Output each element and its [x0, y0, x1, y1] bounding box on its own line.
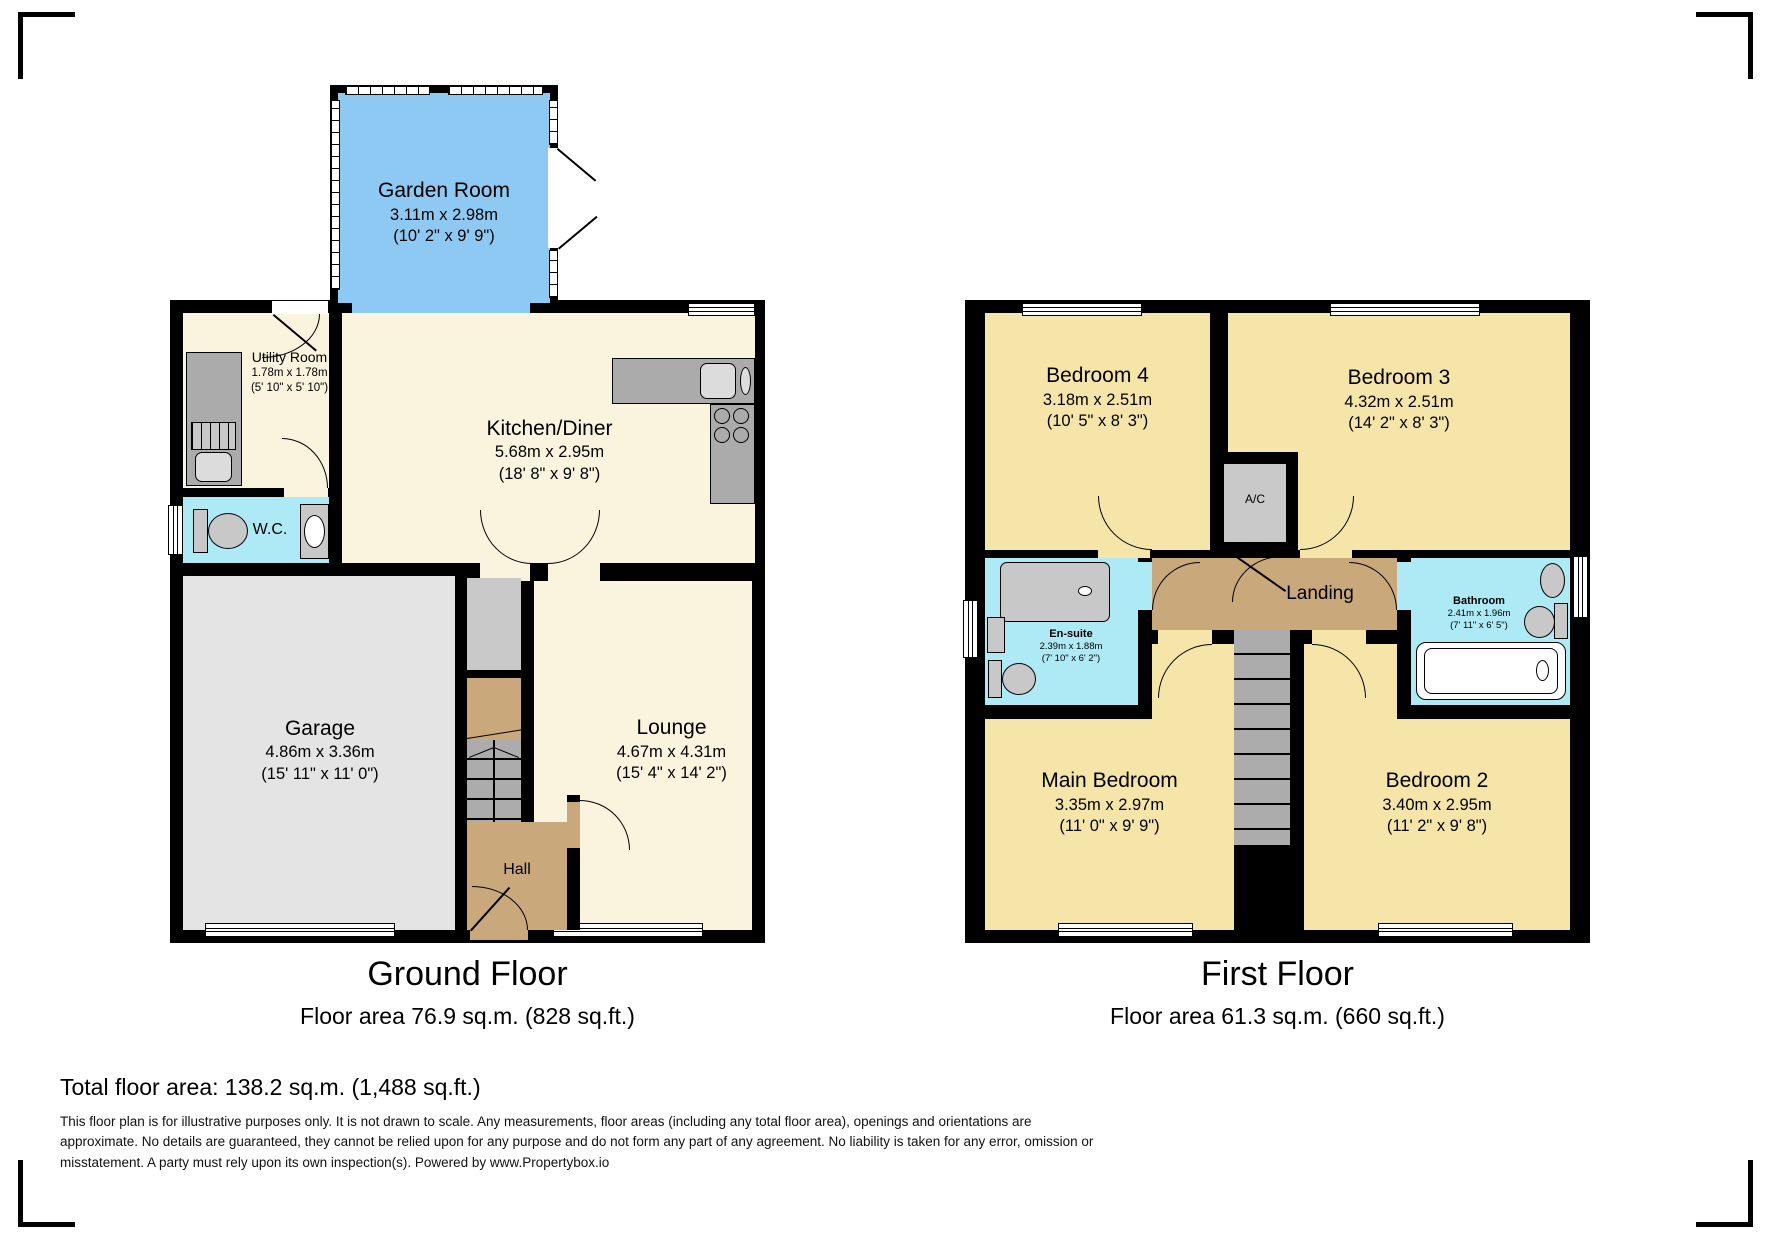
- back-door-opening: [272, 301, 328, 314]
- ground-floor-title: Ground Floor: [170, 955, 765, 994]
- first-floor-area: Floor area 61.3 sq.m. (660 sq.ft.): [965, 1003, 1590, 1030]
- door-opening: [1312, 630, 1366, 644]
- window: [549, 100, 558, 145]
- appliance-icon: [191, 422, 236, 450]
- door-leaf: [558, 216, 598, 250]
- door-opening: [1138, 562, 1152, 610]
- first-floor-title: First Floor: [965, 955, 1590, 994]
- crop-corner-mark: [18, 12, 75, 79]
- crop-corner-mark: [1696, 1160, 1753, 1227]
- door-opening: [567, 802, 580, 848]
- door-opening: [1300, 550, 1352, 558]
- window: [1573, 556, 1588, 618]
- hob-icon: [714, 408, 749, 443]
- sink-icon: [740, 367, 751, 395]
- door-opening: [548, 563, 600, 581]
- total-floor-area: Total floor area: 138.2 sq.m. (1,488 sq.…: [60, 1074, 481, 1101]
- wall: [985, 705, 1138, 719]
- staircase: [1234, 630, 1290, 845]
- french-door-opening: [548, 148, 559, 248]
- door-opening: [1158, 630, 1212, 644]
- room-bedroom-4: [985, 313, 1210, 550]
- crop-corner-mark: [1696, 12, 1753, 79]
- door-opening: [1098, 550, 1150, 558]
- window: [345, 86, 430, 95]
- toilet-icon: [1002, 663, 1036, 695]
- door-leaf: [557, 148, 597, 182]
- room-garage: [183, 576, 455, 930]
- bathtub-drain-icon: [1536, 660, 1549, 681]
- sink-icon: [195, 452, 232, 482]
- window: [688, 303, 755, 316]
- window: [963, 600, 978, 658]
- room-ac: [1224, 464, 1286, 542]
- toilet-icon: [1524, 606, 1555, 638]
- window: [1378, 923, 1513, 937]
- sink-icon: [304, 515, 325, 548]
- toilet-icon: [1554, 603, 1568, 639]
- staircase-divider: [493, 740, 495, 822]
- toilet-icon: [988, 660, 1002, 698]
- window: [1022, 303, 1142, 316]
- window: [1330, 303, 1480, 316]
- door-opening: [284, 487, 328, 497]
- room-garden-room: [338, 93, 550, 303]
- window: [549, 250, 558, 298]
- understairs-cupboard: [467, 578, 521, 670]
- floorplan-canvas: Garden Room 3.11m x 2.98m (10' 2" x 9' 9…: [0, 0, 1771, 1239]
- disclaimer-text: This floor plan is for illustrative purp…: [60, 1112, 1105, 1173]
- window: [168, 505, 183, 555]
- shower-drain-icon: [1078, 586, 1092, 596]
- sink-icon: [987, 617, 1005, 653]
- door-opening: [1397, 562, 1411, 610]
- shower-icon: [1000, 562, 1110, 622]
- sink-icon: [700, 363, 736, 399]
- window: [205, 923, 395, 937]
- toilet-icon: [208, 513, 248, 549]
- window: [1058, 923, 1193, 937]
- window: [331, 100, 340, 290]
- sink-icon: [1540, 563, 1565, 598]
- wall: [1411, 705, 1570, 719]
- window: [448, 86, 543, 95]
- toilet-icon: [193, 509, 208, 553]
- ground-floor-area: Floor area 76.9 sq.m. (828 sq.ft.): [170, 1003, 765, 1030]
